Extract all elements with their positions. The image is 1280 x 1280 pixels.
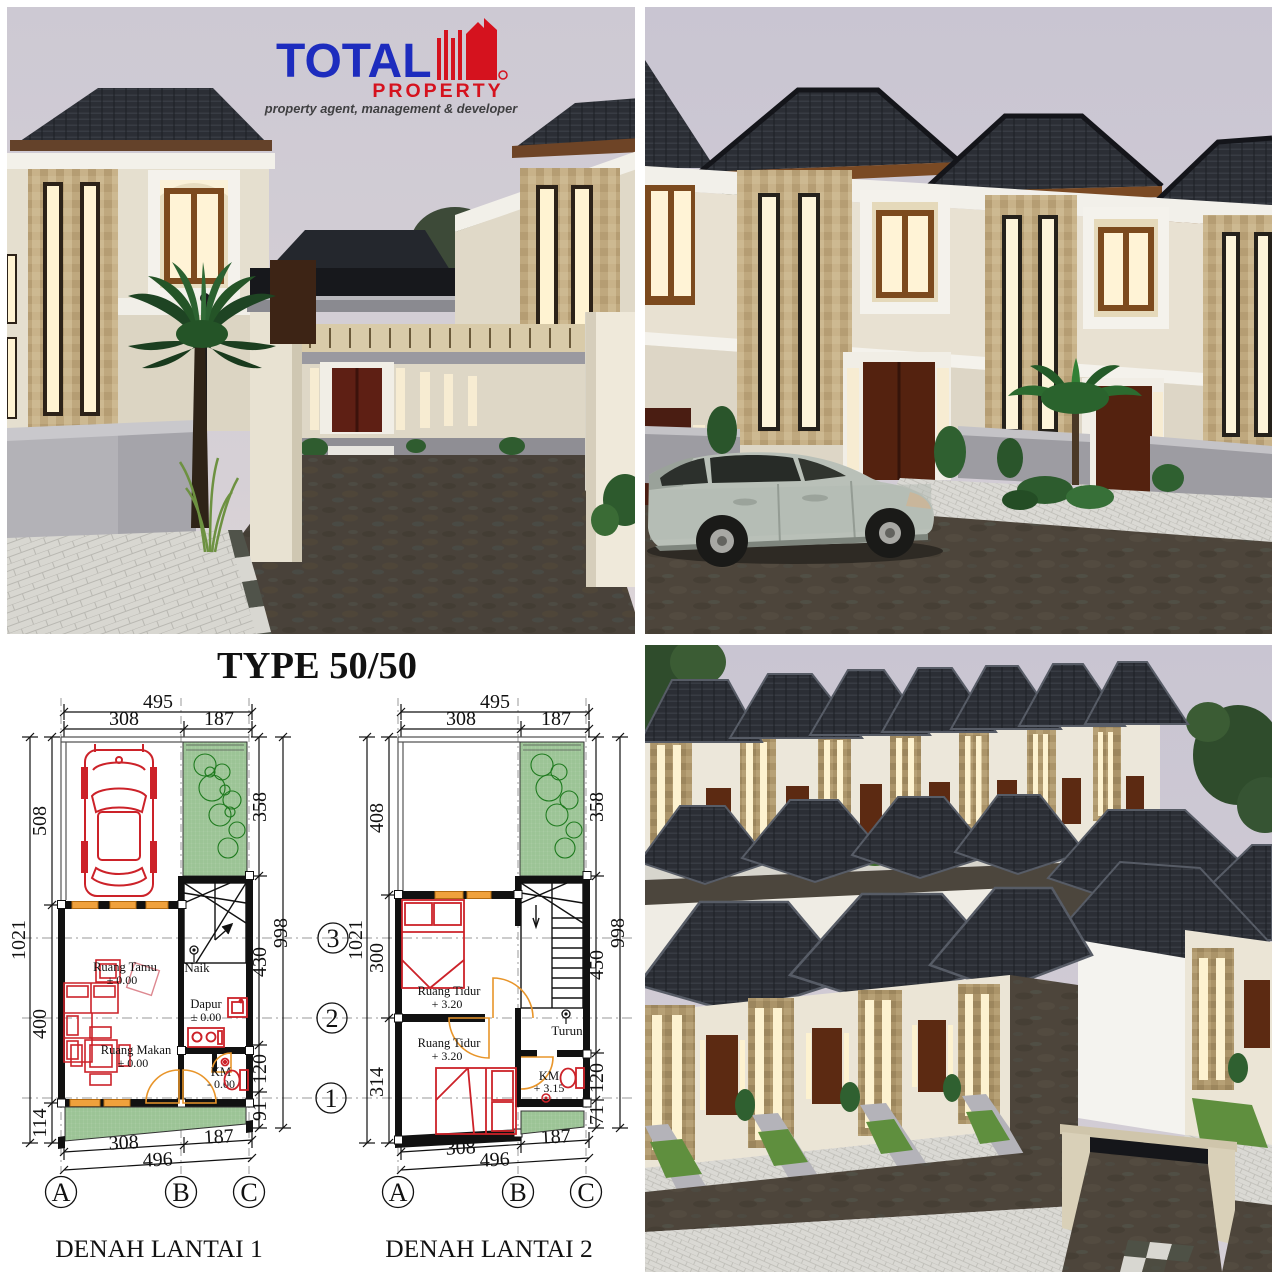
- svg-text:± 0.00: ± 0.00: [191, 1010, 222, 1024]
- svg-text:998: 998: [607, 918, 629, 948]
- svg-text:Turun: Turun: [551, 1023, 583, 1038]
- svg-text:Ruang Tidur: Ruang Tidur: [418, 1036, 482, 1050]
- svg-text:± 0.00: ± 0.00: [107, 973, 138, 987]
- svg-text:187: 187: [204, 708, 234, 730]
- svg-text:187: 187: [541, 708, 571, 730]
- svg-text:358: 358: [249, 792, 271, 822]
- svg-text:PROPERTY: PROPERTY: [372, 80, 503, 102]
- svg-text:495: 495: [143, 691, 173, 713]
- svg-text:3: 3: [327, 924, 340, 953]
- svg-text:1021: 1021: [8, 920, 30, 960]
- svg-text:Naik: Naik: [184, 960, 210, 975]
- svg-text:400: 400: [29, 1009, 51, 1039]
- svg-text:TYPE 50/50: TYPE 50/50: [217, 645, 417, 687]
- svg-text:Ruang Tamu: Ruang Tamu: [93, 960, 158, 974]
- svg-text:± 0.00: ± 0.00: [118, 1056, 149, 1070]
- svg-text:308: 308: [109, 708, 139, 730]
- svg-text:DENAH LANTAI 2: DENAH LANTAI 2: [385, 1234, 593, 1263]
- svg-text:C: C: [240, 1178, 257, 1207]
- svg-text:408: 408: [366, 803, 388, 833]
- svg-text:508: 508: [29, 806, 51, 836]
- svg-text:+ 3.20: + 3.20: [432, 997, 463, 1011]
- svg-text:+ 3.15: + 3.15: [534, 1081, 565, 1095]
- svg-text:358: 358: [586, 792, 608, 822]
- svg-text:71: 71: [586, 1105, 608, 1125]
- svg-text:A: A: [52, 1178, 71, 1207]
- svg-text:A: A: [389, 1178, 408, 1207]
- svg-text:B: B: [172, 1178, 189, 1207]
- svg-text:496: 496: [479, 1148, 510, 1172]
- svg-text:Dapur: Dapur: [190, 997, 222, 1011]
- svg-text:2: 2: [326, 1004, 339, 1033]
- svg-text:495: 495: [480, 691, 510, 713]
- svg-text:308: 308: [446, 708, 476, 730]
- svg-text:Ruang Tidur: Ruang Tidur: [418, 984, 482, 998]
- svg-text:1: 1: [325, 1084, 338, 1113]
- svg-text:187: 187: [203, 1125, 234, 1149]
- svg-text:C: C: [577, 1178, 594, 1207]
- svg-text:Ruang Makan: Ruang Makan: [101, 1043, 172, 1057]
- svg-text:114: 114: [29, 1108, 51, 1137]
- svg-text:property agent, management & d: property agent, management & developer: [264, 101, 518, 116]
- svg-text:300: 300: [366, 943, 388, 973]
- svg-text:314: 314: [366, 1067, 388, 1097]
- svg-text:B: B: [509, 1178, 526, 1207]
- svg-text:DENAH LANTAI 1: DENAH LANTAI 1: [55, 1234, 263, 1263]
- svg-text:998: 998: [270, 918, 292, 948]
- svg-text:496: 496: [142, 1148, 173, 1172]
- svg-text:+ 3.20: + 3.20: [432, 1049, 463, 1063]
